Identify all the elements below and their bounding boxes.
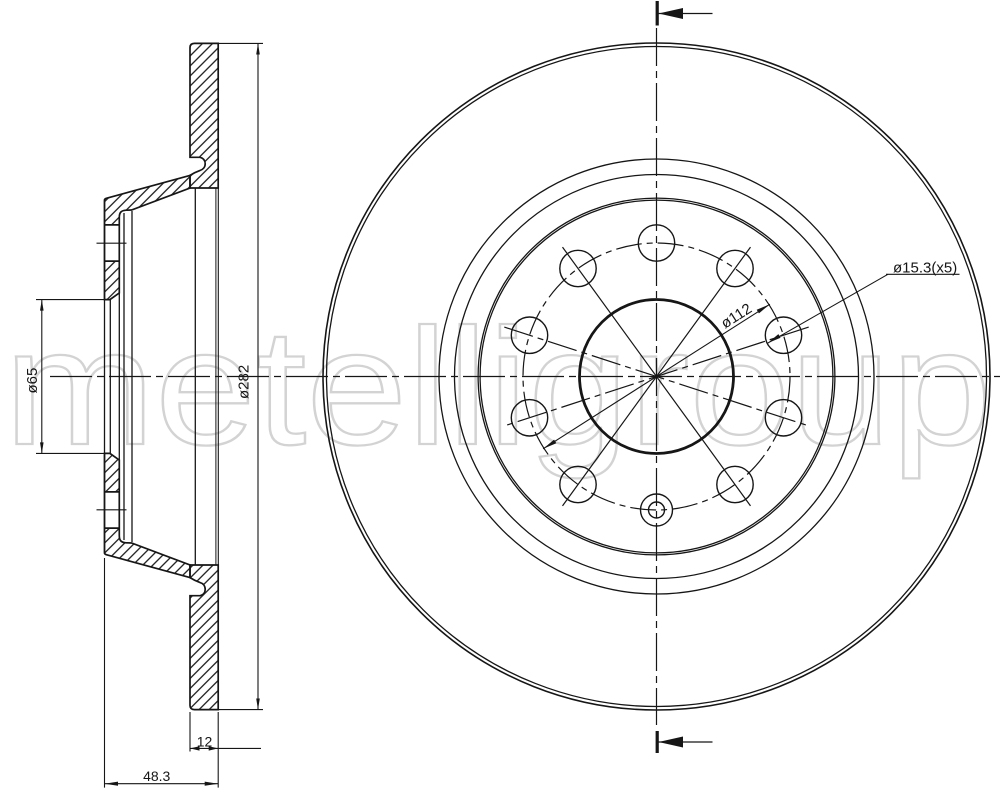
svg-text:ø65: ø65 xyxy=(24,368,41,394)
svg-text:ø282: ø282 xyxy=(236,365,253,399)
svg-text:48.3: 48.3 xyxy=(143,768,170,784)
svg-text:ø15.3(x5): ø15.3(x5) xyxy=(893,260,957,277)
svg-text:12: 12 xyxy=(197,734,213,750)
